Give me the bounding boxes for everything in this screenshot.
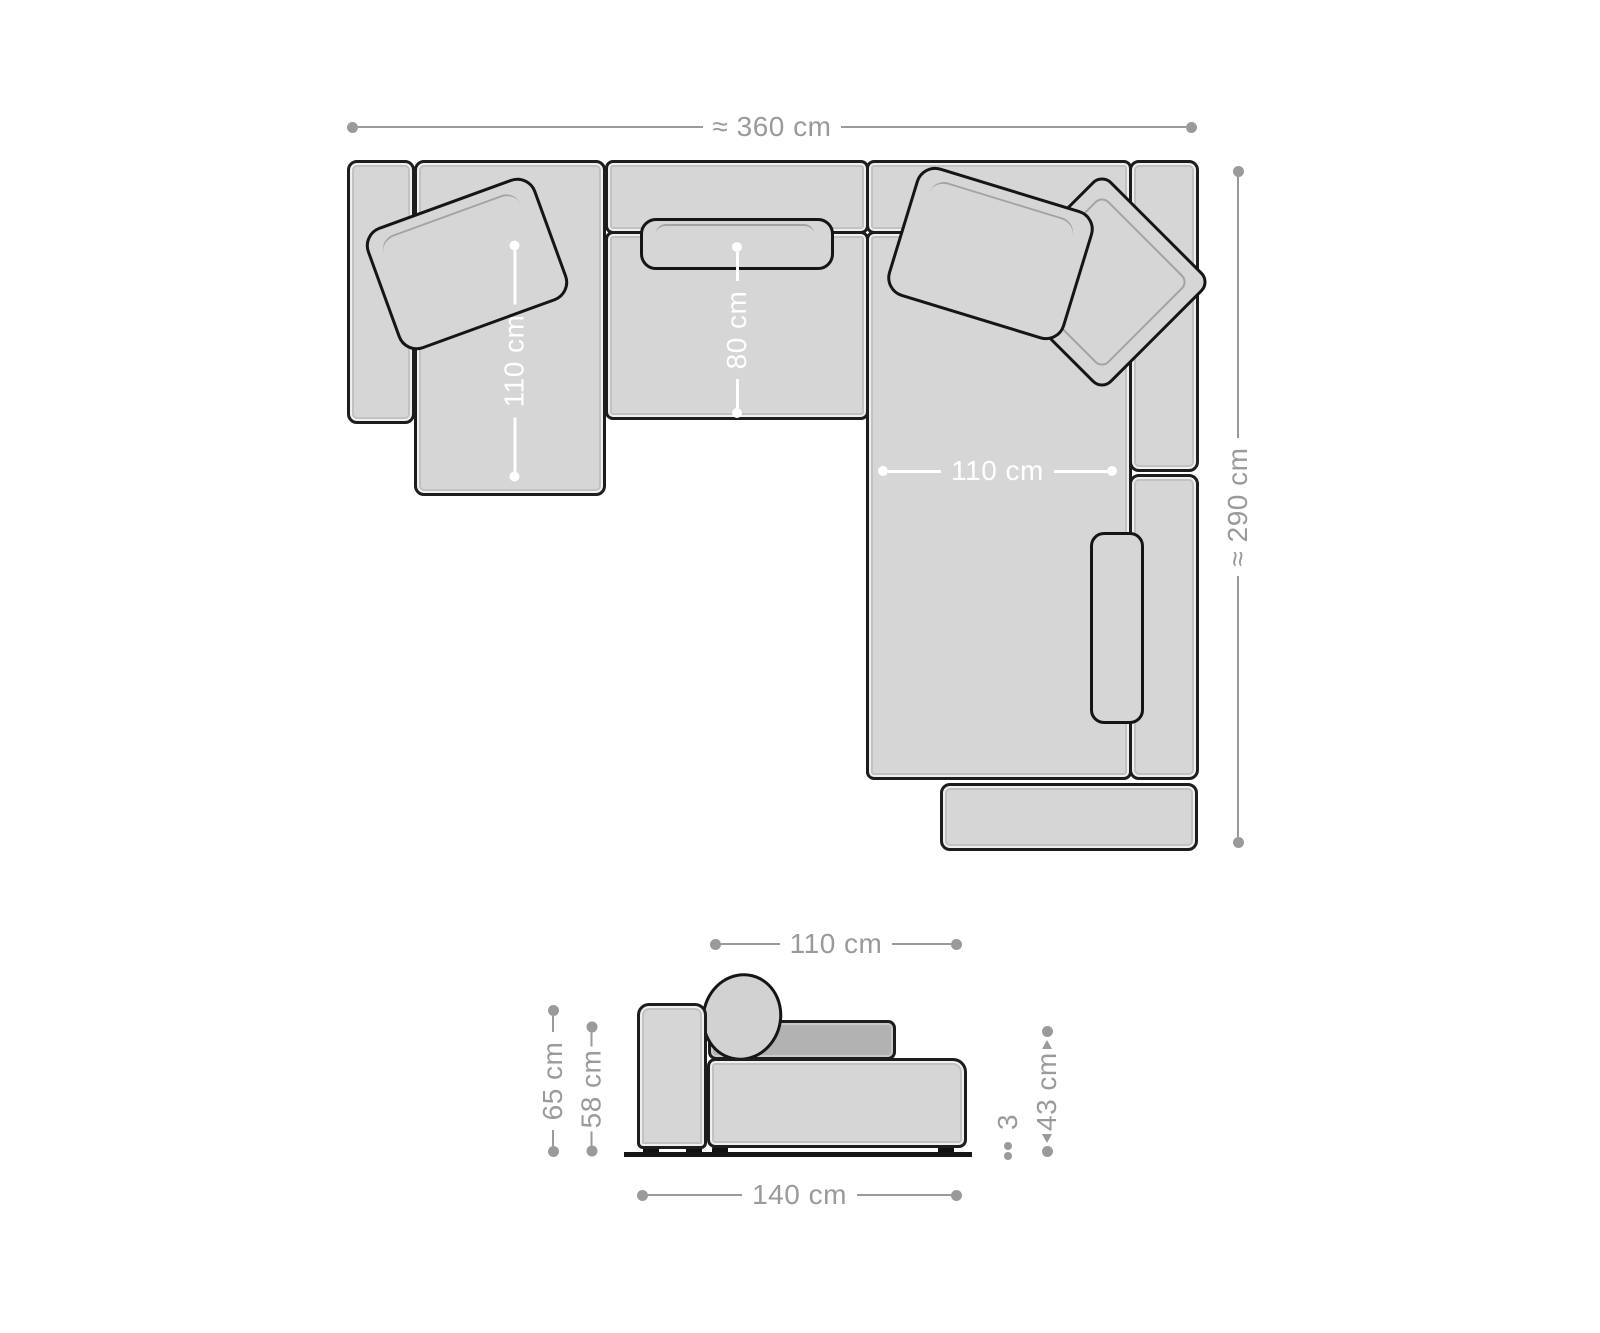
dimension-endpoint-dot: [710, 939, 721, 950]
dimension-line: [1237, 177, 1239, 438]
dimension-endpoint-dot: [951, 939, 962, 950]
dimension-total-height-label: 65 cm: [536, 1032, 570, 1131]
dimension-line: [358, 126, 703, 128]
dimension-module-width: 110 cm: [710, 927, 962, 961]
dimension-line: [736, 252, 739, 281]
dimension-seat-depth: 80 cm: [720, 242, 754, 418]
dimension-foot-height-label: 3: [992, 1108, 1024, 1136]
dimension-arrowhead: [1042, 1134, 1052, 1143]
dimension-line: [552, 1016, 554, 1032]
dimension-endpoint-dot: [732, 242, 742, 252]
dimension-endpoint-dot: [1042, 1026, 1053, 1037]
dimension-endpoint-dot: [637, 1190, 648, 1201]
dimension-endpoint-dot: [548, 1005, 559, 1016]
top-view-ottoman: [940, 783, 1198, 851]
dimension-total-width: ≈ 360 cm: [347, 110, 1197, 144]
dimension-endpoint-dot: [1107, 466, 1117, 476]
dimension-endpoint-dot: [1233, 166, 1244, 177]
dimension-endpoint-dot: [951, 1190, 962, 1201]
dimension-line: [888, 470, 941, 473]
top-view-right-bolster-cushion: [1090, 532, 1144, 724]
dimension-line: [513, 251, 516, 305]
dimension-seat-height: 43 cm: [1030, 1063, 1064, 1157]
dimension-total-depth: ≈ 290 cm: [1221, 166, 1255, 848]
dimension-left-chaise-depth: 110 cm: [498, 241, 532, 482]
dimension-endpoint-dot: [510, 472, 520, 482]
cushion-seam-line: [656, 224, 814, 243]
dimension-line: [648, 1194, 742, 1196]
dimension-line: [591, 1131, 593, 1145]
dimension-seat-depth-label: 80 cm: [720, 281, 754, 380]
dimension-endpoint-dot: [878, 466, 888, 476]
dimension-backrest-height: 58 cm: [575, 1022, 609, 1157]
dimension-endpoint-dot: [548, 1146, 559, 1157]
side-view-armrest: [637, 1003, 707, 1149]
dimension-endpoint-dot: [586, 1146, 597, 1157]
dimension-endpoint-dot: [586, 1022, 597, 1033]
dimension-line: [892, 943, 951, 945]
dimension-line: [1237, 576, 1239, 837]
dimension-endpoint-dot: [510, 241, 520, 251]
dimension-side-depth-label: 140 cm: [742, 1178, 857, 1212]
dimension-endpoint-dot: [1233, 837, 1244, 848]
dimension-left-chaise-depth-label: 110 cm: [498, 305, 532, 418]
side-view-floor-line: [624, 1152, 972, 1157]
dimension-seat-height-label: 43 cm: [1030, 1049, 1064, 1134]
dimension-line: [513, 417, 516, 471]
dimension-right-chaise-width-label: 110 cm: [941, 454, 1054, 488]
side-view-seat-body: [707, 1058, 967, 1148]
dimension-endpoint-dot: [732, 408, 742, 418]
dimension-total-width-label: ≈ 360 cm: [703, 110, 842, 144]
dimension-backrest-height-label: 58 cm: [575, 1047, 609, 1132]
dimension-line: [1054, 470, 1107, 473]
dimension-module-width-label: 110 cm: [780, 927, 893, 961]
dimension-line: [552, 1130, 554, 1146]
dimension-line: [591, 1033, 593, 1047]
dimension-line: [736, 379, 739, 408]
dimension-line: [841, 126, 1186, 128]
dimension-arrowhead: [1042, 1040, 1052, 1049]
dimension-foot-dot: [1004, 1152, 1012, 1160]
dimension-diagram: ≈ 360 cm ≈ 290 cm 110 cm: [0, 0, 1600, 1333]
dimension-total-height: 65 cm: [536, 1005, 570, 1157]
dimension-endpoint-dot: [347, 122, 358, 133]
dimension-right-chaise-width: 110 cm: [878, 454, 1117, 488]
dimension-endpoint-dot: [1042, 1146, 1053, 1157]
dimension-endpoint-dot: [1186, 122, 1197, 133]
dimension-foot-dot: [1004, 1142, 1012, 1150]
dimension-line: [857, 1194, 951, 1196]
dimension-side-depth: 140 cm: [637, 1178, 962, 1212]
dimension-total-depth-label: ≈ 290 cm: [1221, 438, 1255, 577]
dimension-line: [721, 943, 780, 945]
